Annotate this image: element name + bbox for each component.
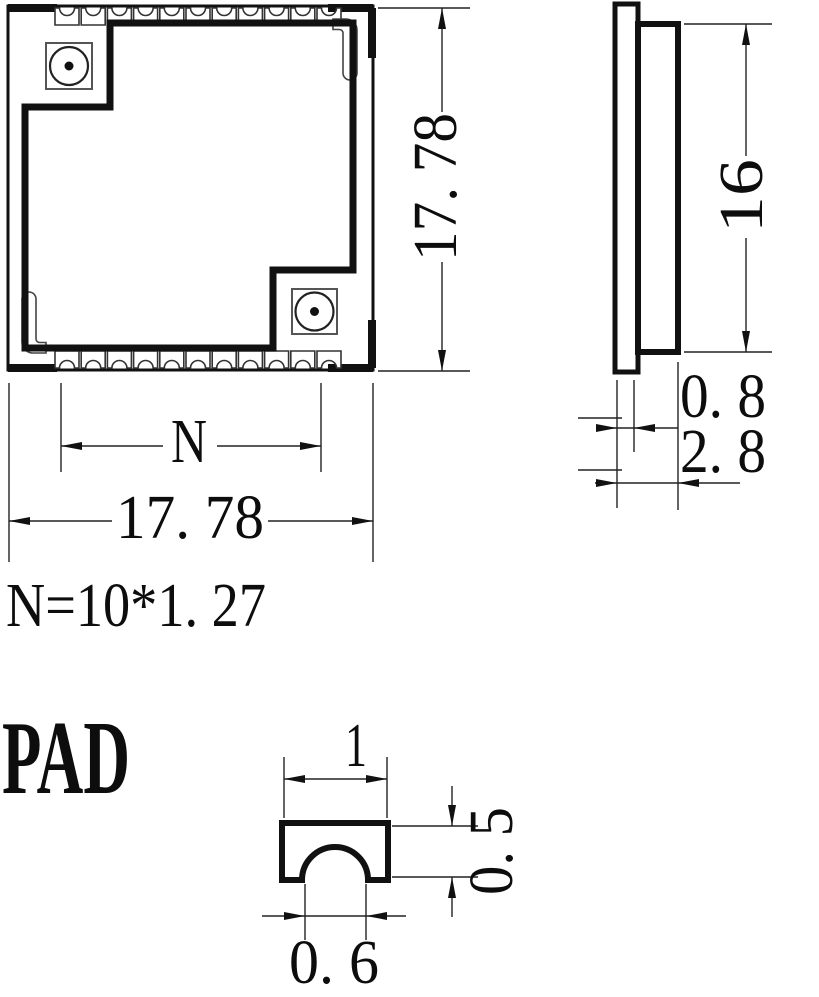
arrowhead [438,8,446,29]
arrowhead [284,912,305,920]
rf-connector-bottom-right [292,289,337,334]
arrowhead [366,775,387,783]
dim-pad-height-label: 0. 5 [458,807,526,895]
rf-connector-top-left [46,43,92,89]
arrowhead [596,424,617,432]
dim-total-thickness-label: 2. 8 [680,418,766,486]
arrowhead [9,517,30,525]
front-view [8,6,373,370]
dim-notch-width-label: 0. 6 [289,929,379,997]
shield-side-profile [638,24,678,352]
arrowhead [352,517,373,525]
arrowhead [596,479,617,487]
technical-drawing: 17. 78 N 17. 78 N=10*1. 27 16 [0,0,819,997]
pad-detail-title: PAD [2,699,130,816]
pad-detail: PAD [2,699,388,880]
arrowhead [448,877,456,898]
arrowhead [742,24,750,45]
arrowhead [284,775,305,783]
arrowhead [300,442,321,450]
dim-shield-height-label: 16 [708,159,776,233]
dim-pad-width-label: 1 [345,712,367,780]
dim-width-label: 17. 78 [116,484,264,552]
side-view [615,4,678,372]
connector-center-dot [65,62,74,71]
pcb-side-profile [615,4,638,372]
dim-height-label: 17. 78 [402,113,470,261]
dim-pad-span-label: N [171,408,207,476]
arrowhead [366,912,387,920]
connector-center-dot [310,307,319,316]
pitch-formula-label: N=10*1. 27 [6,572,266,640]
arrowhead [61,442,82,450]
arrowhead [742,331,750,352]
arrowhead [438,350,446,371]
arrowhead [448,805,456,826]
pad-shape [282,823,388,880]
drawing-sheet: 17. 78 N 17. 78 N=10*1. 27 16 [0,0,819,997]
arrowhead [634,424,655,432]
